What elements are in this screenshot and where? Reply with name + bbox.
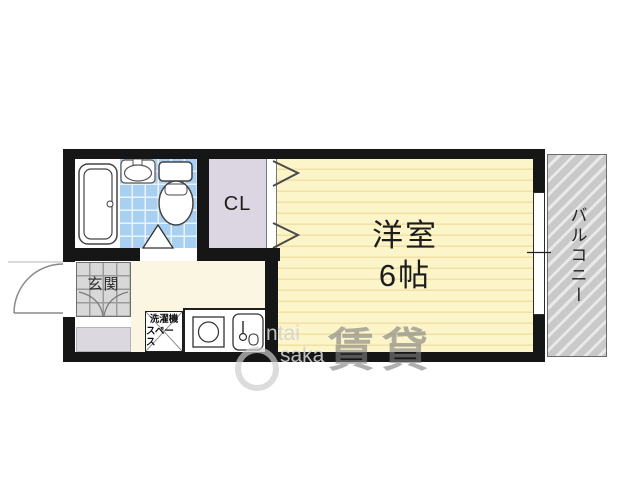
entrance-tile-area [76,262,131,317]
closet-door [266,159,277,250]
wall-bath-closet [197,159,209,261]
closet-area [209,159,266,250]
wall-kitchen-room [265,250,278,362]
wall-interior-h-left [63,248,140,261]
wall-top [63,149,545,159]
wall-bottom [63,352,545,362]
wall-left-lower [63,317,75,362]
bath-tile-area [120,159,197,248]
laundry-label: 洗濯機 スペース [146,312,182,351]
balcony-label: バルコニー [565,206,590,306]
shoe-cabinet [76,327,131,352]
balcony-window [533,192,545,315]
laundry-label-line1: 洗濯機 [150,314,179,325]
wall-right-upper [533,149,545,192]
floorplan-canvas: バルコニー [0,0,640,480]
entrance-door-arc-icon [8,262,63,313]
wall-left-upper [63,149,75,262]
balcony-area: バルコニー [547,154,607,357]
main-room-floor [277,159,533,352]
laundry-space-box: 洗濯機 スペース [145,311,183,352]
wall-right-lower [533,315,545,362]
laundry-label-line2: スペース [146,326,182,349]
